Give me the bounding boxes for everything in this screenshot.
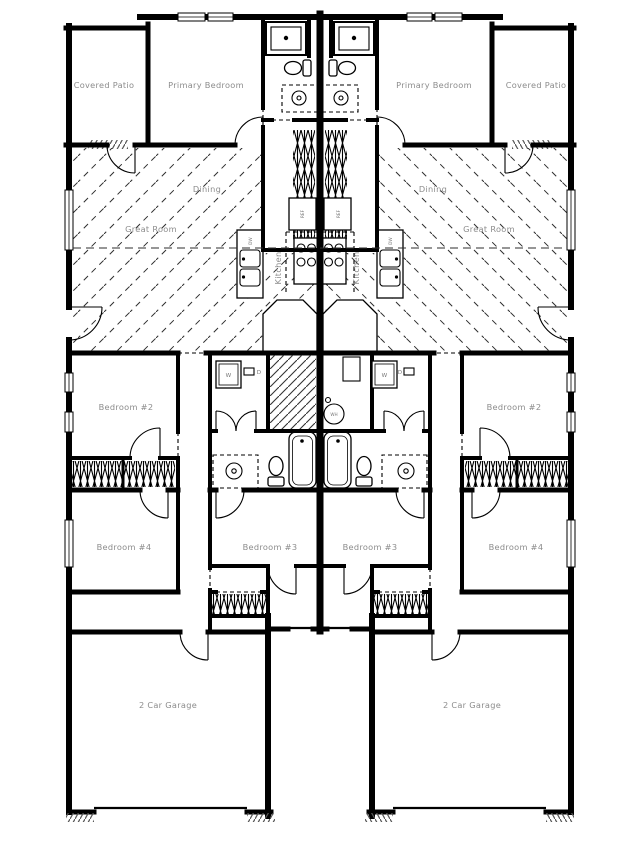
room-label-dining-left: Dining xyxy=(193,184,221,194)
label-dishwasher-right: DW xyxy=(388,237,393,244)
label-dryer-left: D xyxy=(257,370,262,376)
room-label-bedroom4-right: Bedroom #4 xyxy=(489,542,544,552)
label-refrigerator-right: REF xyxy=(336,209,341,218)
duplex-floor-plan: Covered Patio Primary Bedroom Primary Be… xyxy=(0,0,640,841)
label-washer-left: W xyxy=(226,373,232,379)
dryer xyxy=(404,368,414,375)
room-label-garage-left: 2 Car Garage xyxy=(139,700,197,710)
room-label-bedroom2-right: Bedroom #2 xyxy=(487,402,542,412)
room-label-garage-right: 2 Car Garage xyxy=(443,700,501,710)
room-label-bedroom3-right: Bedroom #3 xyxy=(343,542,398,552)
dryer xyxy=(244,368,254,375)
room-label-kitchen-left: Kitchen xyxy=(273,252,283,285)
room-label-bedroom4-left: Bedroom #4 xyxy=(97,542,152,552)
label-dishwasher-left: DW xyxy=(248,237,253,244)
room-label-bedroom2-left: Bedroom #2 xyxy=(99,402,154,412)
label-dryer-right: D xyxy=(398,370,403,376)
floor-plan-page: Covered Patio Primary Bedroom Primary Be… xyxy=(0,0,640,841)
label-water-heater: WH xyxy=(330,412,337,417)
room-label-covered-patio-left: Covered Patio xyxy=(74,80,135,90)
room-label-great-room-right: Great Room xyxy=(463,224,515,234)
room-label-great-room-left: Great Room xyxy=(125,224,177,234)
laundry-left xyxy=(216,361,254,388)
label-washer-right: W xyxy=(382,373,388,379)
furnace xyxy=(343,357,360,381)
room-label-kitchen-right: Kitchen xyxy=(351,252,361,285)
room-label-dining-right: Dining xyxy=(419,184,447,194)
label-refrigerator-left: REF xyxy=(300,209,305,218)
room-label-primary-bedroom-left: Primary Bedroom xyxy=(168,80,244,90)
room-label-primary-bedroom-right: Primary Bedroom xyxy=(396,80,472,90)
mech-chase-hatch xyxy=(270,355,316,429)
room-label-covered-patio-right: Covered Patio xyxy=(506,80,567,90)
room-label-bedroom3-left: Bedroom #3 xyxy=(243,542,298,552)
